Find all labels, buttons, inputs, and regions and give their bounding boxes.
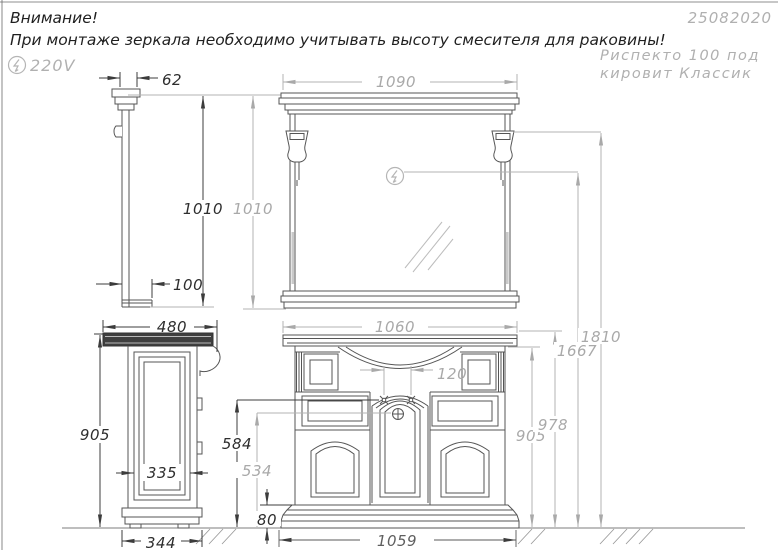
svg-text:1059: 1059 [377, 532, 417, 550]
mirror-height-dims: 1010 1010 [128, 95, 286, 309]
svg-text:120: 120 [437, 365, 467, 383]
mirror-side-view: 62 100 [96, 71, 203, 307]
right-sconce [492, 131, 514, 186]
warning-title: Внимание! [10, 9, 98, 27]
svg-text:1090: 1090 [376, 73, 416, 91]
technical-drawing: Внимание! При монтаже зеркала необходимо… [0, 0, 778, 550]
header: Внимание! При монтаже зеркала необходимо… [9, 9, 773, 82]
svg-text:905: 905 [80, 426, 110, 444]
svg-text:344: 344 [146, 534, 176, 550]
mirror-reflection-left [292, 232, 295, 284]
dim-countertop-top-height: 978 [538, 416, 568, 434]
vanity-side-view: 480 905 335 344 [74, 318, 220, 550]
dim-mirror-side-height: 1010 [183, 200, 223, 218]
doc-number: 25082020 [688, 9, 772, 27]
svg-text:100: 100 [173, 276, 203, 294]
drain-symbol [393, 409, 404, 420]
voltage-label: 220V [30, 56, 76, 75]
dim-sconce-top-height: 1810 [581, 328, 621, 346]
power-icon-header [9, 57, 26, 74]
mirror-front-view: 1090 [279, 73, 519, 308]
dim-mirror-front-height: 1010 [233, 200, 273, 218]
glass-hatch [405, 222, 453, 272]
drawing-sheet: Внимание! При монтаже зеркала необходимо… [0, 0, 778, 550]
dim-side-panel-width: 335 [116, 464, 208, 482]
dim-base-width: 1059 [279, 530, 516, 550]
dim-faucet-holes-spacing: 120 [360, 365, 467, 395]
svg-text:534: 534 [242, 462, 272, 480]
svg-text:584: 584 [222, 435, 252, 453]
dim-countertop-width: 1060 [283, 318, 517, 336]
mirror-reflection-right [506, 232, 509, 284]
svg-text:335: 335 [147, 464, 177, 482]
left-sconce [286, 131, 308, 186]
dim-mirror-width: 1090 [283, 73, 517, 91]
svg-text:80: 80 [257, 511, 277, 529]
dim-mirror-profile-width: 62 [99, 71, 182, 89]
height-dimension-stack: 905 978 1667 1810 [404, 132, 625, 527]
svg-text:62: 62 [162, 71, 182, 89]
svg-text:1060: 1060 [375, 318, 415, 336]
product-name-line1: Риспекто 100 под [600, 48, 760, 64]
floor-hatch [196, 529, 653, 544]
dim-side-base-width: 344 [122, 530, 202, 550]
dim-cabinet-side-height: 905 [74, 334, 117, 527]
product-name-line2: кировит Классик [600, 66, 752, 82]
vanity-front-view: 1060 120 584 534 8 [216, 318, 519, 550]
warning-text: При монтаже зеркала необходимо учитывать… [10, 31, 666, 49]
svg-text:480: 480 [157, 318, 187, 336]
power-icon-mirror [387, 168, 404, 185]
dim-shelf-depth: 100 [96, 276, 203, 298]
